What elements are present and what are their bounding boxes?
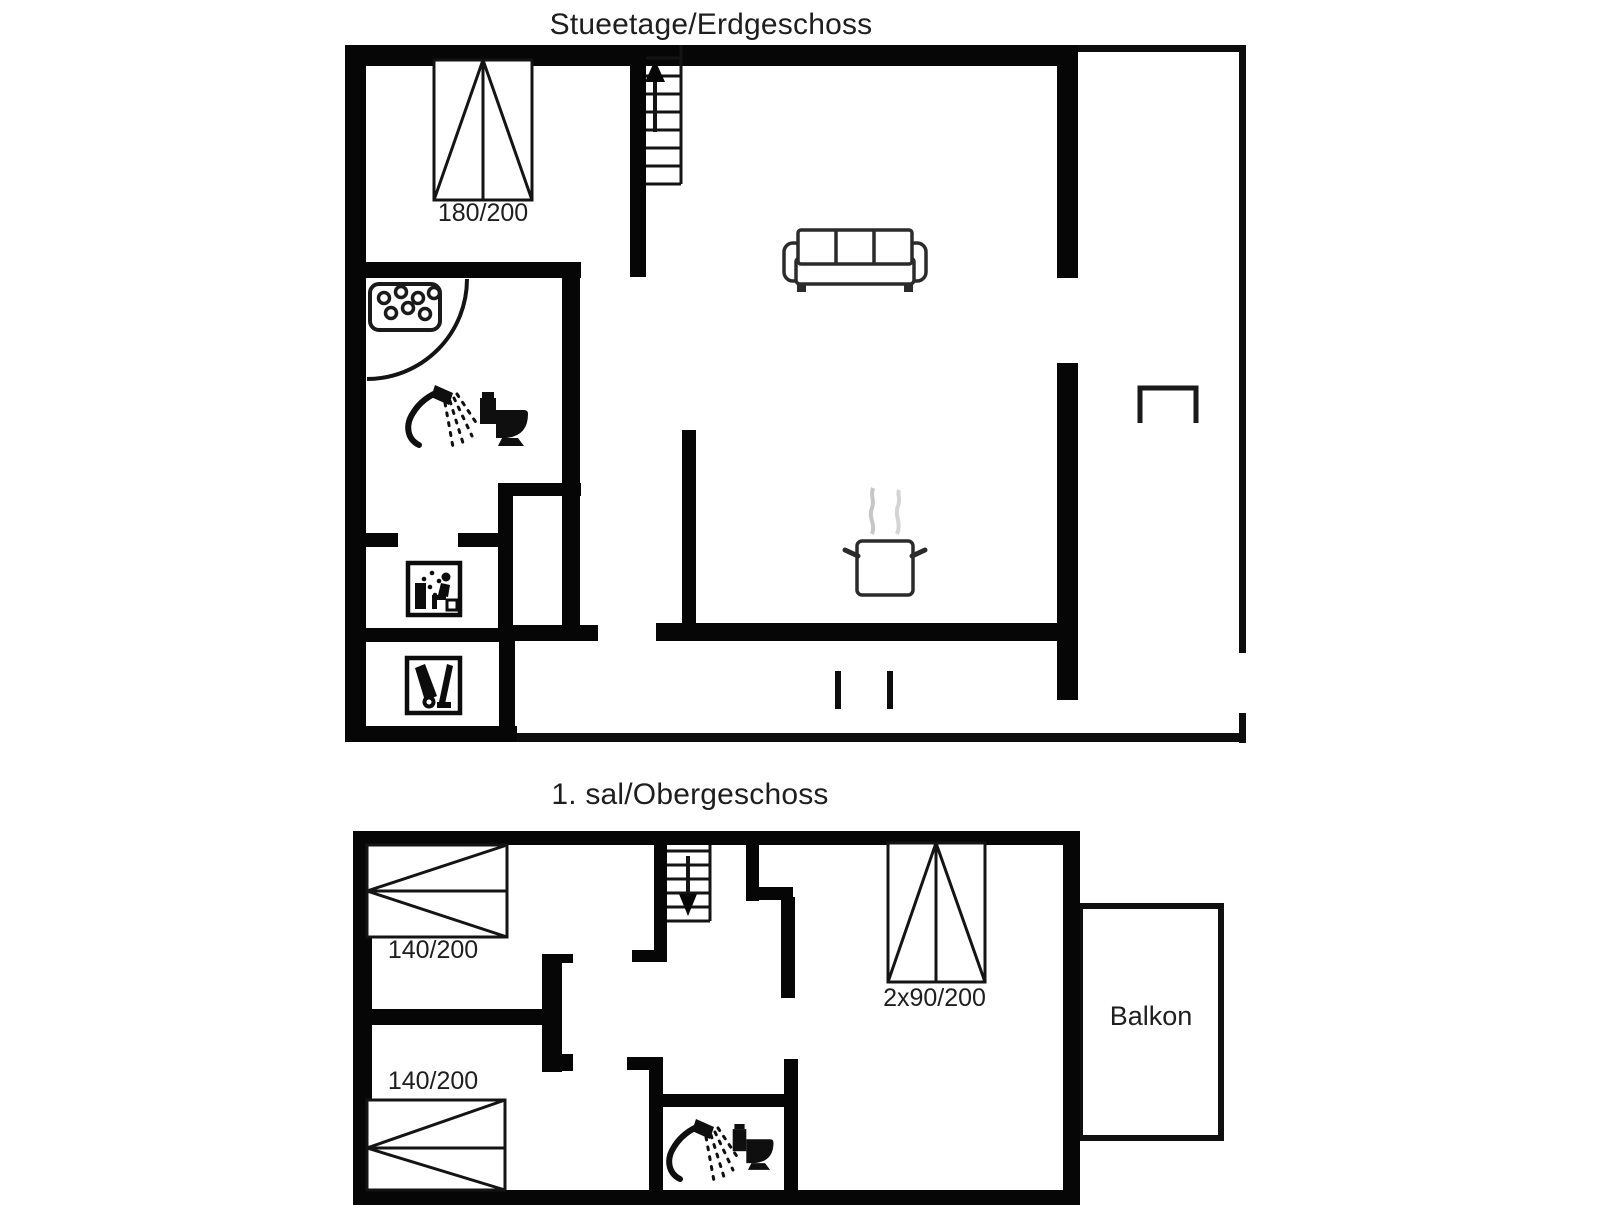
floorplan-drawing xyxy=(0,0,1606,1205)
stairs-down-icon xyxy=(667,845,710,921)
balcony-label: Balkon xyxy=(1085,1002,1217,1032)
hand-shower-icon xyxy=(669,1119,740,1181)
double-bed-icon xyxy=(367,1100,505,1190)
vacuum-cleaner-icon xyxy=(407,658,460,713)
bench-icon xyxy=(1140,388,1196,423)
two-single-beds-icon xyxy=(888,843,985,982)
bed-size-label-2x90: 2x90/200 xyxy=(862,985,1007,1013)
floor-title-upper: 1. sal/Obergeschoss xyxy=(490,778,890,811)
floor-title-ground: Stueetage/Erdgeschoss xyxy=(511,8,911,41)
hand-shower-icon xyxy=(408,385,479,447)
bed-size-label-140-bottom: 140/200 xyxy=(373,1068,493,1096)
toilet-icon xyxy=(480,392,528,446)
bed-size-label-180: 180/200 xyxy=(423,200,543,228)
door-posts xyxy=(835,671,893,709)
whirlpool-tub-icon xyxy=(370,284,440,330)
floorplan-page: Stueetage/Erdgeschoss 180/200 1. sal/Obe… xyxy=(0,0,1606,1205)
double-bed-icon xyxy=(367,845,507,937)
ground-floor-plan xyxy=(345,45,1246,743)
cooking-pot-icon xyxy=(845,488,925,595)
double-bed-icon xyxy=(434,60,532,200)
toilet-icon xyxy=(733,1124,774,1170)
bed-size-label-140-top: 140/200 xyxy=(373,937,493,965)
sofa-icon xyxy=(784,230,926,292)
sauna-icon xyxy=(408,563,460,615)
